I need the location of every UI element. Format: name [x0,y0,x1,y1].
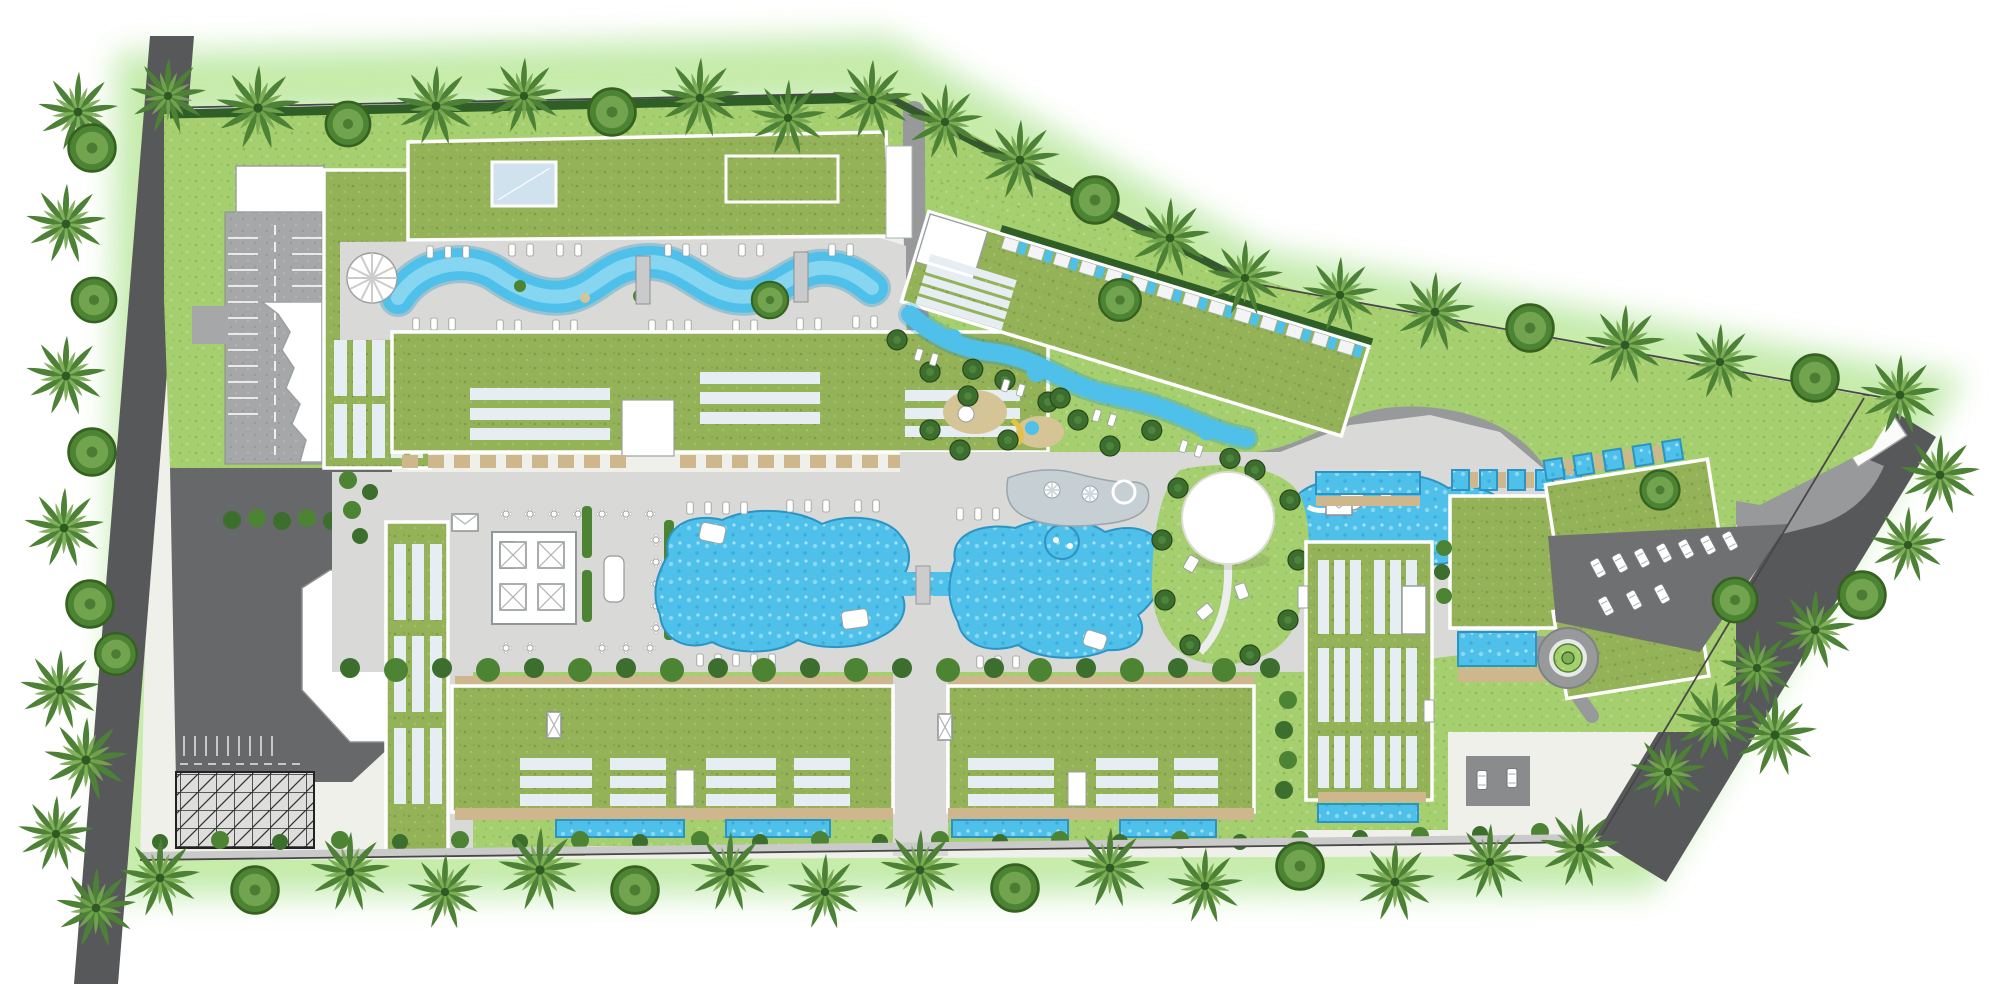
villa-g1-pool [1458,632,1536,666]
building-h-plunge-pools [1316,472,1420,506]
shade-tree [232,867,279,914]
river-bridge [636,256,650,304]
dome-garden [1152,460,1309,665]
shade-tree [69,125,116,172]
building-d [386,522,448,856]
shade-tree [612,867,659,914]
shade-tree [1713,578,1757,622]
shade-tree [1641,471,1680,510]
north-pool-deck [340,238,906,340]
building-h-core [1424,700,1434,722]
building-h-core [1298,586,1308,608]
shade-tree [1839,572,1886,619]
shade-tree [1507,305,1554,352]
shade-tree [326,102,370,146]
b1-deck [455,808,893,820]
shade-tree [589,89,636,136]
event-dome [1182,472,1274,564]
mid-path [893,650,948,856]
clubhouse-building [236,166,324,212]
river-island [580,293,590,303]
river-island [514,280,526,292]
trellis-canopy [176,772,314,848]
play-feature [958,406,974,422]
shade-shell-structure [347,253,397,303]
shade-tree [67,581,114,628]
porte-cochere-canopy [1402,586,1426,634]
shade-tree [1792,355,1839,402]
garden-pavilion [452,514,478,531]
stair-pavilion [938,714,952,740]
play-pond [1025,421,1039,435]
villa-g1-deck [1458,668,1544,682]
bar-counter [604,556,624,602]
palm-tree [26,335,106,415]
pool-bridge [916,566,930,604]
shade-tree [992,865,1039,912]
b2-deck [948,808,1254,820]
b2-lap-pool [952,820,1068,837]
building-c-core [622,400,674,456]
building-b [408,132,912,256]
shade-tree [1099,279,1141,321]
water-flower [1044,482,1060,498]
stair-pavilion [547,712,561,738]
building-b-link [886,146,912,238]
parking-entry [192,306,226,344]
site-plan-svg [0,0,1992,986]
roundabout [1538,628,1598,688]
palm-tree [18,795,94,871]
b2-core [1068,772,1086,806]
terrace-hedge [582,506,592,558]
shade-tree [1072,177,1119,224]
terrace-hedge [582,570,592,622]
building-south-1 [452,676,893,837]
shade-tree [1277,843,1324,890]
shade-tree [95,633,137,675]
shade-tree [72,278,116,322]
float-mat [841,608,869,629]
palm-tree [24,487,104,567]
building-south-2 [948,676,1254,837]
b2-lap-pool [1120,820,1216,837]
building-h-lap-pool [1318,792,1426,822]
b1-core [676,770,694,806]
resort-site-plan [0,0,1992,986]
shade-tree [752,282,788,318]
pool-west [655,511,909,652]
water-flower [1082,486,1098,502]
car [1507,769,1517,788]
kids-round-pool [1045,525,1079,559]
river-bridge [794,252,808,302]
car [1477,771,1487,790]
palm-tree [26,183,106,263]
palm-tree [20,649,100,729]
shade-tree [69,429,116,476]
villa-parking-pad [1466,756,1530,806]
